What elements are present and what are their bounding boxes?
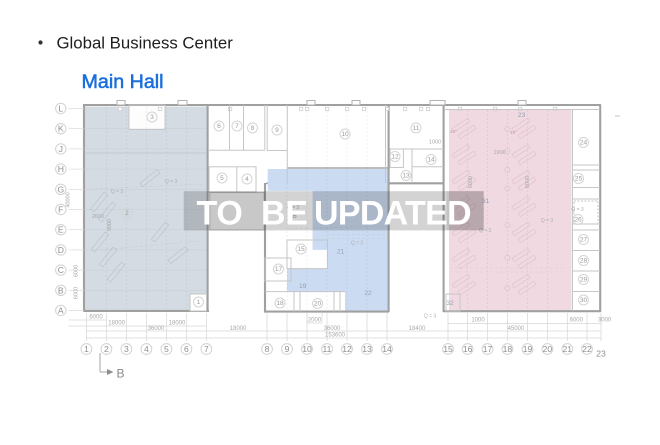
svg-text:6000: 6000 [570,318,584,324]
svg-text:13: 13 [402,173,410,180]
svg-text:19: 19 [299,283,307,290]
svg-text:10: 10 [341,131,349,138]
svg-text:36000: 36000 [148,326,165,332]
svg-text:Q = 3: Q = 3 [351,241,364,247]
svg-text:20: 20 [314,301,322,308]
svg-text:3000: 3000 [598,318,612,324]
svg-text:15: 15 [443,344,453,354]
svg-text:L: L [58,104,63,114]
svg-text:40000: 40000 [66,192,72,207]
svg-text:20: 20 [543,344,553,354]
svg-text:2: 2 [104,344,109,354]
svg-text:18400: 18400 [409,326,426,332]
svg-text:Q = 3: Q = 3 [571,207,584,213]
svg-text:1900: 1900 [493,150,505,156]
svg-text:14: 14 [382,344,392,354]
svg-text:4: 4 [144,344,149,354]
svg-text:27: 27 [580,237,588,244]
svg-text:6000: 6000 [468,176,474,188]
svg-text:45°: 45° [450,129,457,134]
svg-text:11: 11 [323,344,332,354]
svg-text:32: 32 [446,300,454,307]
svg-text:6000: 6000 [74,265,80,277]
svg-text:12: 12 [342,344,352,354]
svg-text:5: 5 [164,344,169,354]
svg-text:B: B [58,285,64,295]
svg-text:9: 9 [285,344,290,354]
svg-text:6000: 6000 [74,287,80,299]
svg-text:Q = 3: Q = 3 [424,314,437,320]
svg-text:K: K [58,124,64,134]
svg-text:24: 24 [580,140,588,147]
svg-text:3: 3 [150,114,154,121]
svg-text:3: 3 [124,344,129,354]
svg-text:25: 25 [575,176,583,183]
svg-text:14: 14 [427,157,435,164]
svg-text:17: 17 [275,266,283,273]
svg-text:18000: 18000 [108,321,125,327]
svg-text:36000: 36000 [324,326,341,332]
svg-text:Q = 3: Q = 3 [165,179,178,185]
svg-text:1000: 1000 [471,318,485,324]
svg-text:19: 19 [523,344,533,354]
svg-text:26: 26 [574,217,582,224]
svg-text:23: 23 [596,349,606,359]
svg-text:1000: 1000 [429,140,441,146]
svg-text:18000: 18000 [169,321,186,327]
svg-text:23: 23 [518,112,526,119]
svg-text:Global Business Center: Global Business Center [57,34,234,53]
svg-text:C: C [58,265,64,275]
svg-text:8: 8 [265,344,270,354]
svg-text:21: 21 [563,344,573,354]
svg-text:8: 8 [251,125,255,132]
svg-text:6: 6 [217,123,221,130]
svg-text:TOBEUPDATED: TOBEUPDATED [197,195,472,233]
svg-text:2: 2 [125,210,129,217]
svg-text:17: 17 [483,344,493,354]
svg-text:153600: 153600 [325,333,346,339]
svg-text:G: G [57,184,64,194]
svg-text:1: 1 [84,344,89,354]
svg-text:45000: 45000 [508,326,525,332]
svg-text:5: 5 [220,175,224,182]
svg-text:11: 11 [413,125,420,132]
svg-text:22: 22 [364,290,372,297]
svg-text:F: F [58,205,63,215]
svg-text:13: 13 [362,344,372,354]
svg-text:B: B [117,367,125,381]
svg-text:Q = 3: Q = 3 [541,218,554,224]
svg-text:Main Hall: Main Hall [82,71,164,93]
svg-text:30: 30 [580,297,588,304]
svg-text:E: E [58,225,64,235]
svg-text:H: H [58,164,64,174]
svg-text:18000: 18000 [230,326,247,332]
svg-text:6000: 6000 [89,315,103,321]
svg-text:7: 7 [235,123,239,130]
svg-text:45°: 45° [510,130,517,135]
svg-text:6: 6 [184,344,189,354]
svg-text:1: 1 [197,299,201,306]
svg-text:D: D [58,245,64,255]
svg-text:29: 29 [580,277,588,284]
svg-text:2000: 2000 [308,318,322,324]
svg-text:15: 15 [297,246,305,253]
svg-text:2600: 2600 [92,214,104,220]
svg-text:22: 22 [582,344,592,354]
svg-text:9: 9 [275,127,279,134]
svg-text:10: 10 [302,344,312,354]
svg-text:J: J [59,144,63,154]
svg-text:12: 12 [391,154,399,161]
svg-text:A: A [58,306,64,316]
svg-text:18: 18 [503,344,513,354]
svg-text:28: 28 [580,258,588,265]
svg-text:6000: 6000 [525,176,531,188]
svg-text:16: 16 [463,344,473,354]
svg-text:Q = 3: Q = 3 [111,189,124,195]
svg-text:18: 18 [276,300,284,307]
svg-text:7: 7 [204,344,209,354]
svg-text:9000: 9000 [107,219,113,231]
svg-text:21: 21 [337,249,345,256]
svg-text:4: 4 [245,176,249,183]
